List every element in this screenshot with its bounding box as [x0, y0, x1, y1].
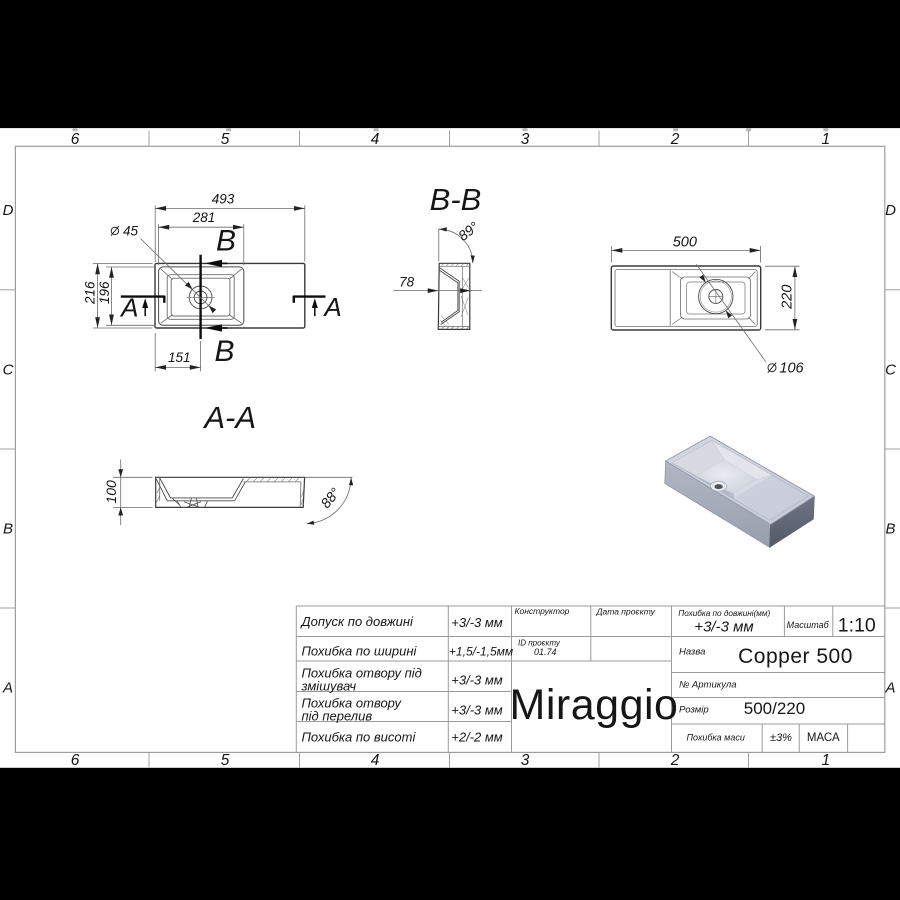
svg-text:Похибка по ширині: Похибка по ширині: [302, 644, 418, 659]
svg-text:216: 216: [82, 281, 97, 305]
svg-text:2: 2: [670, 752, 680, 769]
svg-text:+2/-2 мм: +2/-2 мм: [451, 730, 503, 745]
svg-text:493: 493: [212, 191, 235, 206]
svg-text:281: 281: [192, 210, 216, 225]
svg-text:D: D: [885, 202, 896, 219]
svg-text:B: B: [216, 225, 236, 258]
svg-text:Допуск по довжині: Допуск по довжині: [300, 614, 415, 629]
svg-text:Похибка по висоті: Похибка по висоті: [302, 730, 417, 745]
svg-text:Назва: Назва: [679, 646, 705, 657]
svg-text:500/220: 500/220: [744, 699, 805, 718]
svg-text:+3/-3 мм: +3/-3 мм: [451, 703, 503, 718]
svg-text:Copper 500: Copper 500: [738, 645, 853, 668]
svg-text:220: 220: [779, 285, 795, 310]
svg-text:B-B: B-B: [430, 182, 482, 217]
svg-text:A: A: [2, 680, 13, 697]
svg-text:змішувач: змішувач: [301, 679, 357, 694]
svg-text:±3%: ±3%: [770, 732, 792, 744]
svg-text:Похибка маси: Похибка маси: [687, 733, 745, 743]
svg-text:5: 5: [221, 752, 230, 769]
svg-text:C: C: [885, 362, 896, 379]
svg-text:6: 6: [71, 131, 80, 148]
svg-text:+1,5/-1,5мм: +1,5/-1,5мм: [449, 645, 513, 659]
svg-text:3: 3: [521, 752, 530, 769]
svg-text:+3/-3 мм: +3/-3 мм: [451, 615, 503, 630]
svg-text:5: 5: [221, 131, 230, 148]
svg-text:196: 196: [97, 281, 112, 304]
svg-text:Дата проєкту: Дата проєкту: [596, 607, 656, 617]
svg-text:під перелив: під перелив: [302, 709, 373, 724]
svg-text:3: 3: [521, 131, 530, 148]
svg-text:Масштаб: Масштаб: [787, 620, 830, 630]
svg-text:B: B: [214, 335, 234, 368]
svg-text:4: 4: [371, 131, 380, 148]
svg-text:78: 78: [399, 275, 415, 290]
svg-text:C: C: [3, 362, 14, 379]
svg-text:500: 500: [673, 235, 697, 251]
svg-text:МАСА: МАСА: [807, 732, 840, 744]
svg-text:+3/-3 мм: +3/-3 мм: [694, 619, 753, 636]
svg-text:№ Артикула: № Артикула: [679, 679, 737, 690]
svg-text:01.74: 01.74: [534, 647, 557, 657]
svg-text:4: 4: [371, 752, 380, 769]
svg-text:Конструктор: Конструктор: [515, 606, 570, 616]
svg-text:A: A: [119, 292, 138, 322]
svg-text:A-A: A-A: [202, 400, 256, 435]
svg-text:Розмір: Розмір: [679, 704, 709, 715]
svg-text:A: A: [884, 680, 895, 697]
svg-text:2: 2: [670, 131, 680, 148]
svg-text:B: B: [885, 521, 895, 538]
svg-text:B: B: [3, 521, 13, 538]
svg-text:1: 1: [821, 752, 830, 769]
svg-text:45: 45: [123, 224, 139, 239]
svg-text:1: 1: [821, 131, 830, 148]
svg-text:6: 6: [71, 752, 80, 769]
svg-text:151: 151: [168, 350, 191, 365]
svg-text:+3/-3 мм: +3/-3 мм: [451, 673, 503, 688]
svg-text:106: 106: [779, 361, 804, 377]
svg-text:A: A: [322, 292, 341, 322]
svg-text:Похибка по довжині(мм): Похибка по довжині(мм): [678, 609, 770, 618]
svg-text:100: 100: [103, 480, 119, 504]
svg-text:Miraggio: Miraggio: [510, 681, 679, 729]
svg-text:1:10: 1:10: [838, 615, 876, 637]
svg-text:D: D: [3, 202, 14, 219]
